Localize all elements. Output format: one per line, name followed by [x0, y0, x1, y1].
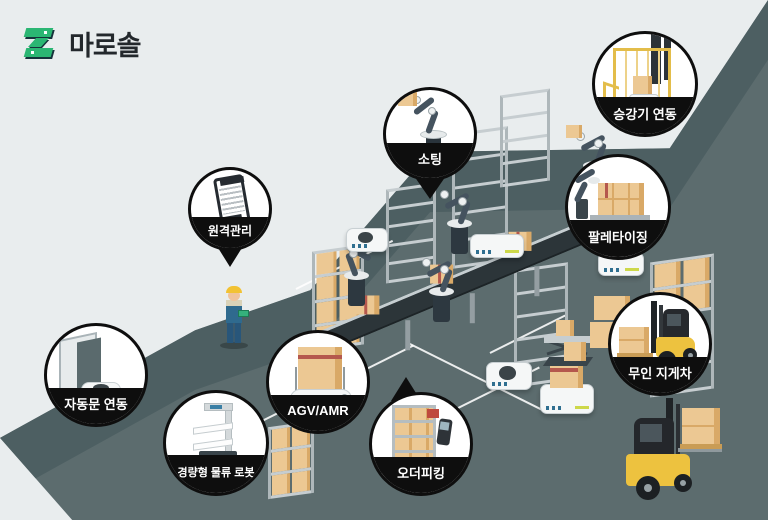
decor-shape	[667, 314, 681, 326]
decor-shape	[24, 28, 54, 37]
callout-remote-management: 원격관리	[188, 167, 272, 251]
robot-arm	[334, 246, 378, 306]
decor-shape	[640, 424, 662, 442]
callout-circle: 소팅	[383, 87, 477, 181]
decor-shape	[348, 276, 365, 306]
decor-shape	[598, 198, 644, 200]
decor-shape	[220, 342, 248, 349]
callout-label: 무인 지게차	[611, 357, 709, 393]
decor-shape	[476, 250, 494, 254]
box-stack	[564, 342, 586, 361]
decor-shape	[628, 183, 630, 215]
brand-logo-mark-icon	[22, 27, 60, 60]
decor-shape	[427, 409, 439, 418]
decor-shape	[358, 232, 373, 243]
decor-shape	[352, 244, 370, 248]
callout-light-logistics-robot: 경량형 물류 로봇	[163, 390, 269, 496]
callout-label: 승강기 연동	[595, 97, 695, 134]
decor-shape	[343, 367, 345, 391]
decor-shape	[633, 76, 652, 94]
callout-circle: 자동문 연동	[44, 323, 148, 427]
callout-order-picking: 오더피킹	[369, 392, 473, 496]
callout-label: 오더피킹	[372, 457, 470, 493]
decor-shape	[566, 125, 582, 138]
decor-shape	[644, 484, 652, 492]
callout-auto-door-link: 자동문 연동	[44, 323, 148, 427]
decor-shape	[225, 405, 232, 457]
decor-shape	[440, 265, 449, 274]
decor-shape	[680, 444, 722, 449]
decor-shape	[433, 292, 450, 322]
callout-label: 소팅	[386, 143, 474, 178]
brand-logo: 마로솔	[22, 24, 141, 63]
agv-robot	[486, 362, 532, 390]
decor-shape	[492, 382, 510, 386]
decor-shape	[534, 266, 539, 296]
agv-robot	[346, 228, 388, 252]
decor-shape	[298, 347, 342, 391]
callout-label: 자동문 연동	[47, 388, 145, 424]
decor-shape	[556, 320, 574, 336]
callout-unmanned-forklift: 무인 지게차	[608, 292, 712, 396]
decor-shape	[210, 405, 222, 409]
callout-sorting: 소팅	[383, 87, 477, 181]
decor-shape	[226, 286, 242, 293]
brand-name: 마로솔	[69, 24, 141, 63]
callout-label: 팔레타이징	[568, 220, 668, 257]
decor-shape	[219, 185, 245, 214]
callout-circle: 경량형 물류 로봇	[163, 390, 269, 496]
decor-shape	[398, 92, 417, 106]
decor-shape	[605, 183, 608, 198]
decor-shape	[428, 107, 436, 115]
decor-shape	[625, 268, 639, 271]
agv-robot-carrying-box	[540, 384, 594, 414]
infographic-stage: 소팅 승강기 연동 팔레타이징 원격관리 자동문 연동 AGV/AMR	[0, 0, 768, 520]
callout-circle: 무인 지게차	[608, 292, 712, 396]
decor-shape	[451, 224, 468, 254]
decor-shape	[28, 38, 49, 47]
decor-shape	[680, 480, 686, 486]
callout-label: 원격관리	[191, 217, 269, 248]
decor-shape	[458, 197, 467, 206]
callout-label: AGV/AMR	[269, 395, 367, 431]
decor-shape	[619, 339, 649, 341]
callout-palletizing: 팔레타이징	[565, 154, 671, 260]
decor-shape	[612, 183, 614, 215]
decor-shape	[295, 367, 297, 391]
decor-shape	[594, 139, 603, 148]
decor-shape	[422, 258, 431, 267]
decor-shape	[439, 421, 449, 430]
robot-arm	[420, 262, 464, 322]
callout-agv-amr: AGV/AMR	[266, 330, 370, 434]
callout-circle: 오더피킹	[369, 392, 473, 496]
callout-circle: 팔레타이징	[565, 154, 671, 260]
warehouse-worker	[216, 284, 252, 350]
decor-shape	[31, 51, 34, 54]
decor-shape	[564, 342, 586, 361]
shelf-rack-empty	[500, 88, 550, 187]
decor-shape	[24, 48, 54, 57]
callout-circle: 원격관리	[188, 167, 272, 251]
decor-shape	[298, 355, 342, 359]
decor-shape	[575, 406, 589, 409]
decor-shape	[505, 250, 519, 253]
decor-shape	[238, 310, 249, 317]
decor-shape	[546, 406, 564, 410]
decor-shape	[499, 366, 516, 380]
decor-shape	[588, 177, 600, 184]
decor-shape	[405, 320, 410, 350]
decor-shape	[604, 268, 622, 272]
decor-shape	[420, 130, 447, 139]
callout-circle: 승강기 연동	[592, 31, 698, 137]
forklift	[626, 398, 740, 502]
decor-shape	[682, 425, 720, 427]
decor-shape	[44, 31, 47, 34]
decor-shape	[227, 323, 241, 343]
decor-shape	[470, 293, 475, 323]
callout-circle: AGV/AMR	[266, 330, 370, 434]
agv-robot	[470, 234, 524, 258]
callout-label: 경량형 물류 로봇	[166, 455, 266, 493]
callout-elevator-link: 승강기 연동	[592, 31, 698, 137]
